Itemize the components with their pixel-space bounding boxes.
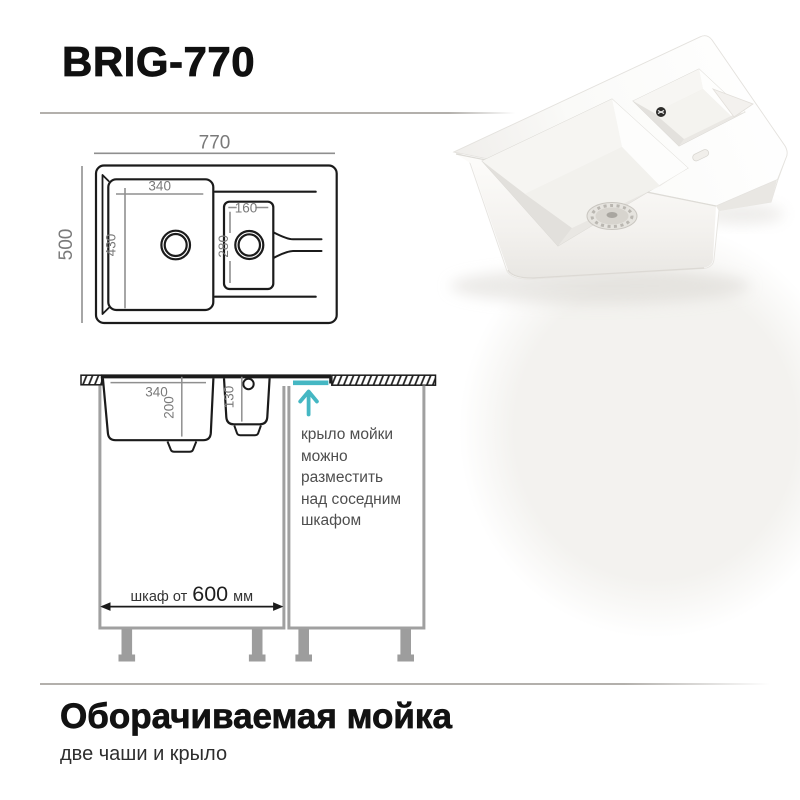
divider-bottom: [40, 683, 770, 685]
leg: [122, 630, 133, 656]
extra-drain-section: [234, 426, 261, 436]
cabinet-size-label: шкаф от600мм: [131, 582, 254, 606]
wing-highlight: [293, 383, 328, 415]
dim-label-extra-bowl-width: 160: [235, 200, 258, 215]
arrowhead-left: [100, 602, 110, 611]
page: BRIG-770 770 500 340 430: [0, 0, 800, 800]
dim-label-bowl-depth-side: 200: [162, 396, 177, 419]
footer-subtitle: две чаши и крыло: [60, 743, 227, 766]
cabinet-size-unit: мм: [233, 589, 253, 605]
up-arrow-icon: [300, 392, 317, 415]
product-photo: [425, 12, 800, 652]
dim-label-extra-depth-side: 130: [221, 386, 236, 409]
top-view-drawing: 770 500 340 430 160 280: [55, 122, 365, 337]
countertop-right: [332, 375, 436, 385]
dim-label-overall-depth: 500: [56, 229, 77, 261]
cabinet-dim: шкаф от600мм: [100, 582, 283, 611]
arrowhead-right: [273, 602, 283, 611]
leg-foot: [249, 655, 266, 662]
cabinet-size-prefix: шкаф от: [131, 589, 188, 605]
leg-foot: [295, 655, 312, 662]
sink-section: [101, 376, 331, 451]
cabinet-legs: [119, 630, 415, 662]
footer-title: Оборачиваемая мойка: [60, 697, 452, 737]
product-title: BRIG-770: [62, 38, 255, 86]
main-drain-circle-inner: [165, 234, 187, 256]
dim-label-overall-width: 770: [199, 132, 231, 153]
overflow-channel: [274, 233, 322, 258]
main-drain-section: [168, 442, 197, 452]
leg-foot: [119, 655, 136, 662]
overflow-hole: [243, 379, 253, 389]
drain-strainer: [587, 203, 637, 230]
extra-drain-circle-inner: [239, 234, 260, 255]
cabinet-size-value: 600: [192, 582, 228, 606]
leg: [298, 630, 309, 656]
dim-label-main-bowl-width: 340: [148, 179, 171, 194]
dim-label-main-bowl-depth: 430: [104, 234, 119, 257]
countertop-left: [81, 375, 102, 385]
dim-label-extra-bowl-depth: 280: [216, 235, 231, 258]
leg: [400, 630, 411, 656]
leg: [252, 630, 263, 656]
leg-foot: [397, 655, 414, 662]
